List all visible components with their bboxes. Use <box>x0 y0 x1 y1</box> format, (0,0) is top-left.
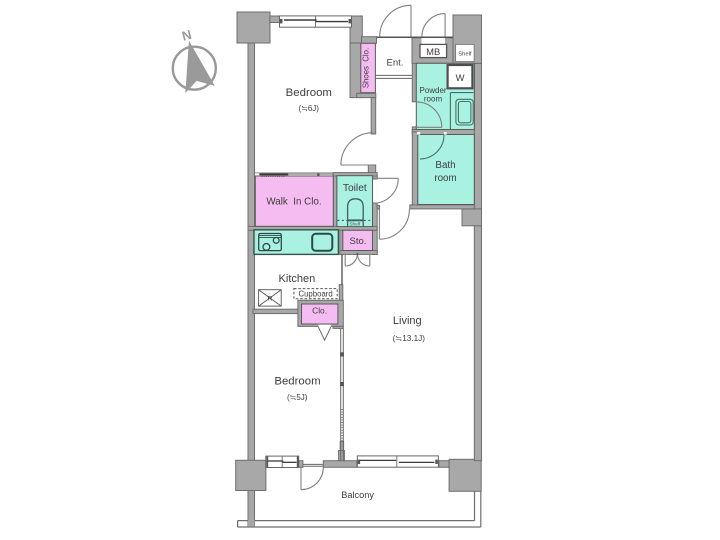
svg-text:Cupboard: Cupboard <box>298 290 332 299</box>
svg-text:Bedroom: Bedroom <box>274 375 320 387</box>
svg-text:Sto.: Sto. <box>350 236 367 247</box>
svg-text:MB: MB <box>426 46 440 57</box>
svg-text:Shoes Clo.: Shoes Clo. <box>362 48 371 88</box>
svg-text:(≒6J): (≒6J) <box>298 104 319 113</box>
svg-text:(≒5J): (≒5J) <box>287 393 308 402</box>
svg-text:room: room <box>434 173 456 184</box>
svg-text:Bath: Bath <box>435 160 455 171</box>
svg-text:Shelf: Shelf <box>458 52 472 58</box>
svg-text:Balcony: Balcony <box>341 490 374 500</box>
svg-text:R: R <box>268 295 273 302</box>
svg-text:Toilet: Toilet <box>343 183 367 194</box>
svg-text:Kitchen: Kitchen <box>279 273 316 285</box>
svg-text:Ent.: Ent. <box>387 57 404 68</box>
svg-text:Walk In Clo.: Walk In Clo. <box>266 197 321 208</box>
svg-text:(≒13.1J): (≒13.1J) <box>393 334 426 343</box>
svg-text:Living: Living <box>393 315 422 327</box>
svg-text:Bedroom: Bedroom <box>286 87 332 99</box>
svg-text:W: W <box>456 72 465 83</box>
svg-text:Clo.: Clo. <box>312 305 327 315</box>
svg-text:room: room <box>424 95 443 104</box>
svg-text:Shelf: Shelf <box>349 222 361 228</box>
